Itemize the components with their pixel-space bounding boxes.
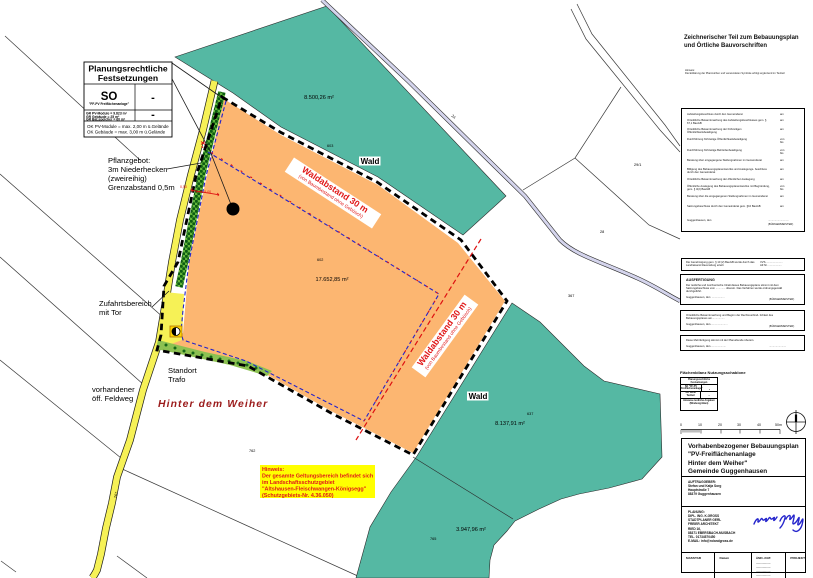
svg-text:24: 24 xyxy=(450,114,456,120)
svg-text:3m Niederhecken: 3m Niederhecken xyxy=(108,165,168,174)
svg-text:Standort: Standort xyxy=(168,366,198,375)
svg-text:-: - xyxy=(151,92,155,104)
svg-text:10: 10 xyxy=(698,423,702,427)
svg-text:Grenzabstand 0,5m: Grenzabstand 0,5m xyxy=(108,183,175,192)
svg-text:30: 30 xyxy=(737,423,741,427)
svg-text:öff. Feldweg: öff. Feldweg xyxy=(92,394,133,403)
svg-text:OK PV-Module = max. 2,00 m ü: OK PV-Module = max. 2,00 m ü.Gelände xyxy=(87,124,169,129)
svg-text:(zweireihig): (zweireihig) xyxy=(108,174,147,183)
svg-text:765: 765 xyxy=(430,537,436,541)
svg-text:Hinweis:: Hinweis: xyxy=(262,467,284,473)
svg-text:28: 28 xyxy=(600,230,604,234)
svg-text:29/1: 29/1 xyxy=(634,163,641,167)
svg-text:40: 40 xyxy=(757,423,761,427)
svg-text:3.947,96 m²: 3.947,96 m² xyxy=(456,527,486,533)
svg-text:Trafo: Trafo xyxy=(168,375,185,384)
svg-text:GR Bat.speicher = 60 m²: GR Bat.speicher = 60 m² xyxy=(86,118,126,122)
svg-text:20: 20 xyxy=(718,423,722,427)
svg-text:mit Tor: mit Tor xyxy=(99,308,122,317)
svg-text:0,50: 0,50 xyxy=(180,185,187,189)
svg-text:8.500,26 m²: 8.500,26 m² xyxy=(304,95,334,101)
svg-text:im Landschaftsschutzgebiet: im Landschaftsschutzgebiet xyxy=(262,480,335,486)
svg-text:OK Gebäude = max. 3,00 m: OK Gebäude = max. 3,00 m ü.Gelände xyxy=(87,130,166,135)
svg-text:50m: 50m xyxy=(775,423,782,427)
svg-text:637: 637 xyxy=(527,412,533,416)
svg-text:17.652,85 m²: 17.652,85 m² xyxy=(316,277,349,283)
svg-text:(Schutzgebiets-Nr. 4.36.050): (Schutzgebiets-Nr. 4.36.050) xyxy=(262,493,334,499)
svg-text:603: 603 xyxy=(327,144,333,148)
svg-text:Wald: Wald xyxy=(469,392,488,401)
svg-text:Planungsrechtliche: Planungsrechtliche xyxy=(88,64,167,74)
svg-text:367: 367 xyxy=(568,294,574,298)
svg-text:Hinter dem Weiher: Hinter dem Weiher xyxy=(158,399,268,410)
svg-text:Festsetzungen: Festsetzungen xyxy=(98,73,158,83)
svg-text:-: - xyxy=(151,109,155,121)
svg-text:"FF-PV Freiflächenanlage": "FF-PV Freiflächenanlage" xyxy=(89,102,130,106)
svg-text:Wald: Wald xyxy=(361,157,380,166)
svg-text:762: 762 xyxy=(249,449,255,453)
svg-text:8.137,91 m²: 8.137,91 m² xyxy=(495,421,525,427)
svg-text:602: 602 xyxy=(317,258,323,262)
svg-text:"Altshausen-Fleischwangen-Köni: "Altshausen-Fleischwangen-Königsegg" xyxy=(262,487,367,493)
svg-text:Zufahrtsbereich: Zufahrtsbereich xyxy=(99,299,152,308)
svg-text:Der gesamte Geltungsbereich be: Der gesamte Geltungsbereich befindet sic… xyxy=(262,474,373,480)
svg-text:Pflanzgebot:: Pflanzgebot: xyxy=(108,156,150,165)
svg-text:767: 767 xyxy=(114,492,119,499)
svg-text:0: 0 xyxy=(680,423,682,427)
svg-text:vorhandener: vorhandener xyxy=(92,385,135,394)
